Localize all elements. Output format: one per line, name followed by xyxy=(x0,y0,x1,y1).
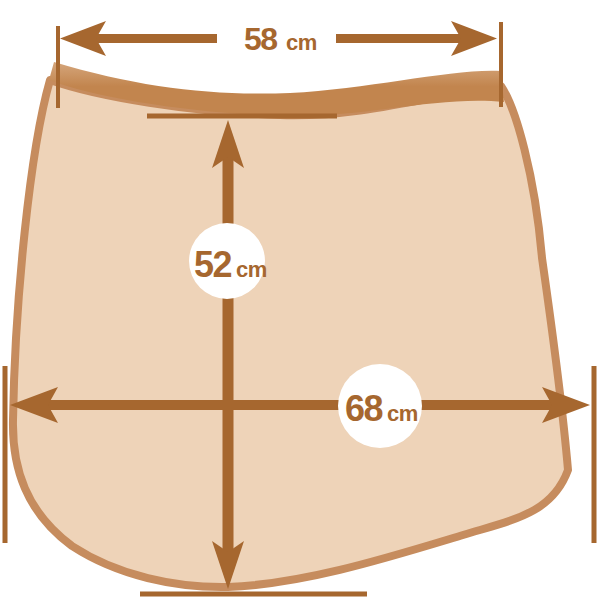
top-width-label: 58 cm xyxy=(244,21,317,57)
garment-body-panel xyxy=(13,80,568,587)
dimension-diagram-canvas: 58 cm 52 cm 68 cm xyxy=(0,0,600,600)
dimension-diagram: 58 cm 52 cm 68 cm xyxy=(0,0,600,600)
bottom-width-value: 68 xyxy=(345,388,383,429)
top-width-unit: cm xyxy=(286,30,317,55)
height-unit: cm xyxy=(236,257,267,282)
bottom-width-unit: cm xyxy=(387,401,418,426)
height-value: 52 xyxy=(194,244,232,285)
top-width-value: 58 xyxy=(244,21,277,57)
top-width-dimension-arrow xyxy=(60,21,497,56)
